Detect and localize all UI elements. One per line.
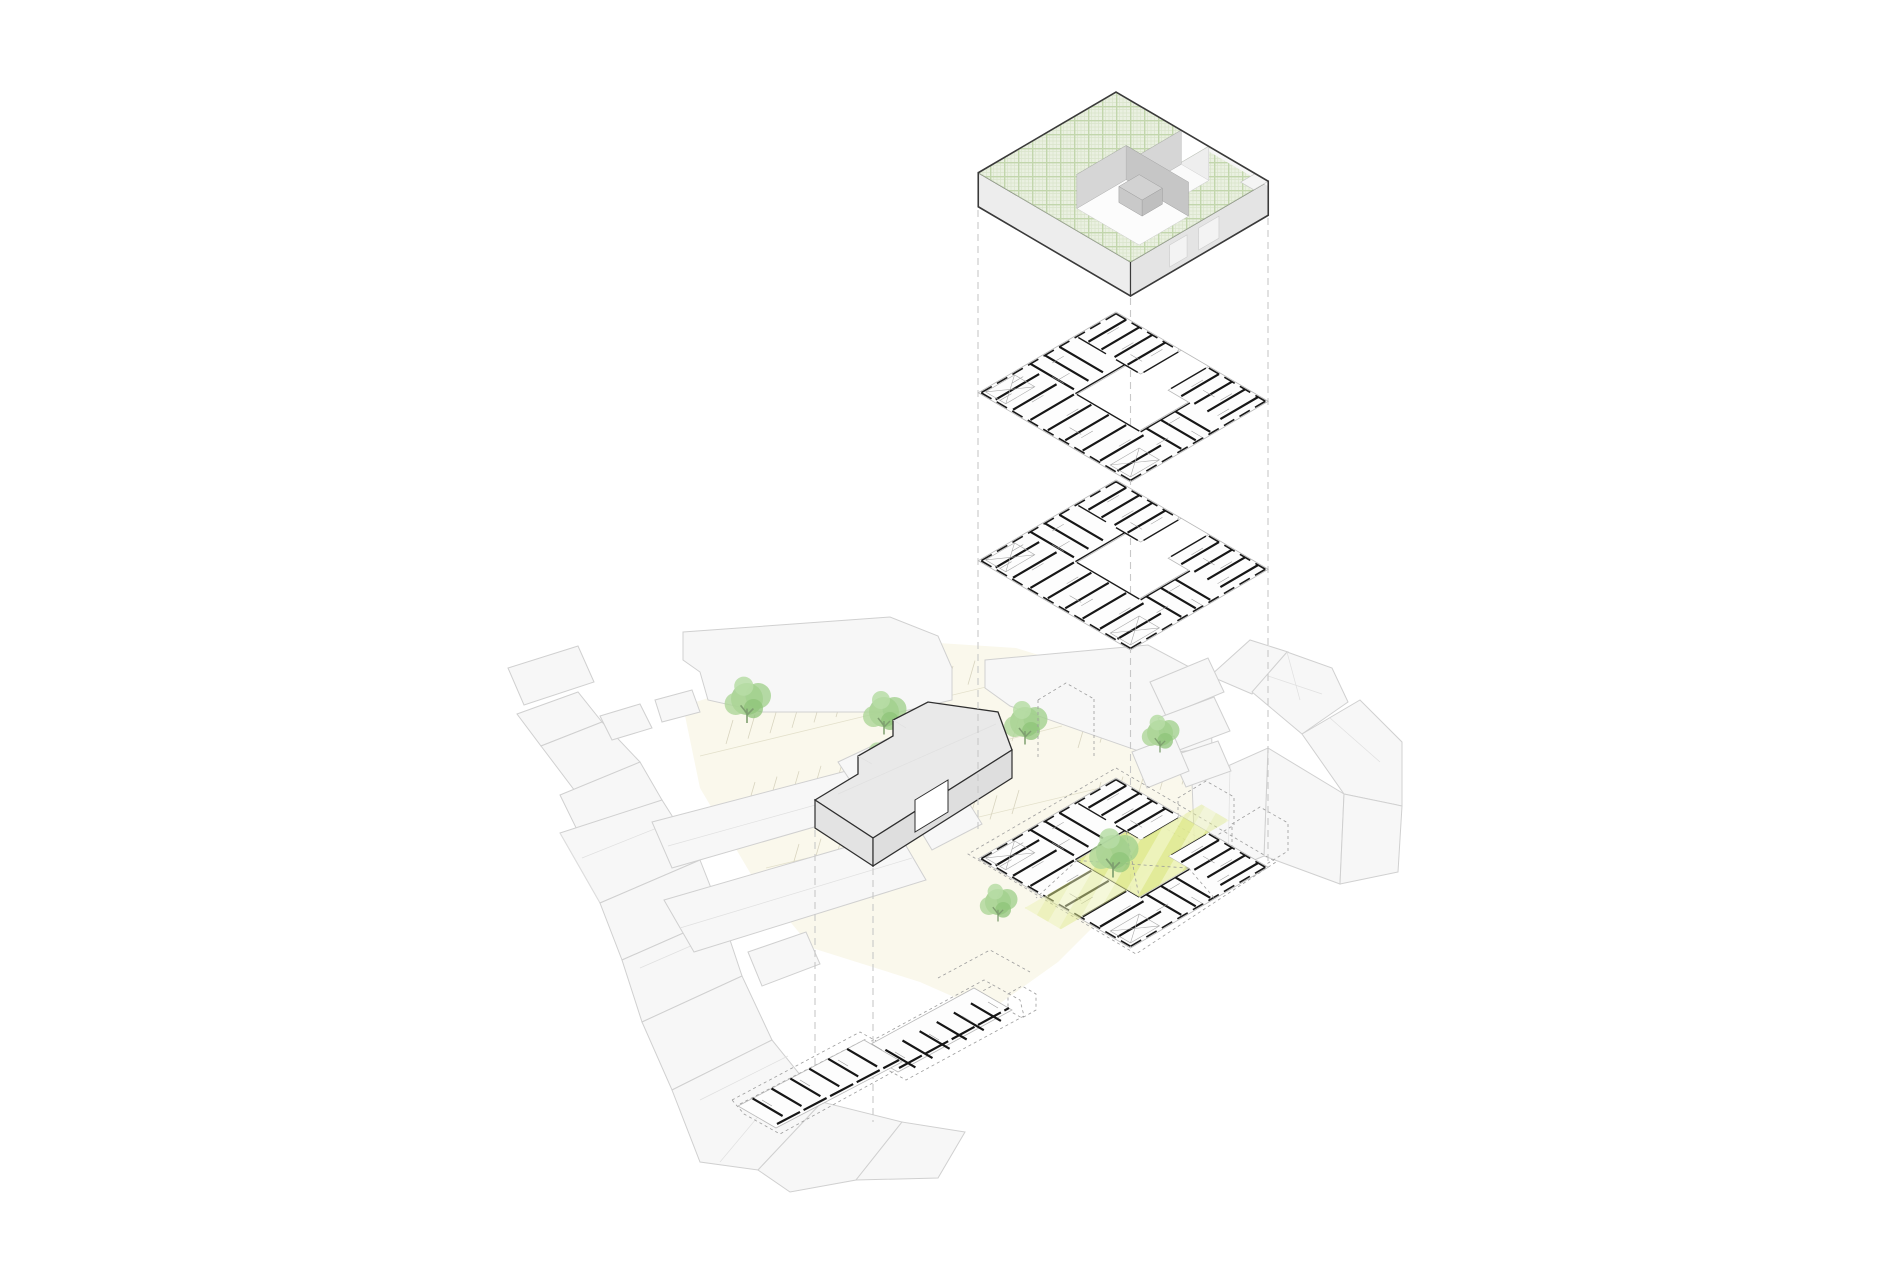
exploded-axonometric-diagram: [0, 0, 1900, 1266]
lower-floor-plan: [978, 480, 1268, 650]
diagram-canvas: [0, 0, 1900, 1266]
building-volume: [978, 92, 1268, 296]
upper-floor-plan: [978, 312, 1268, 482]
